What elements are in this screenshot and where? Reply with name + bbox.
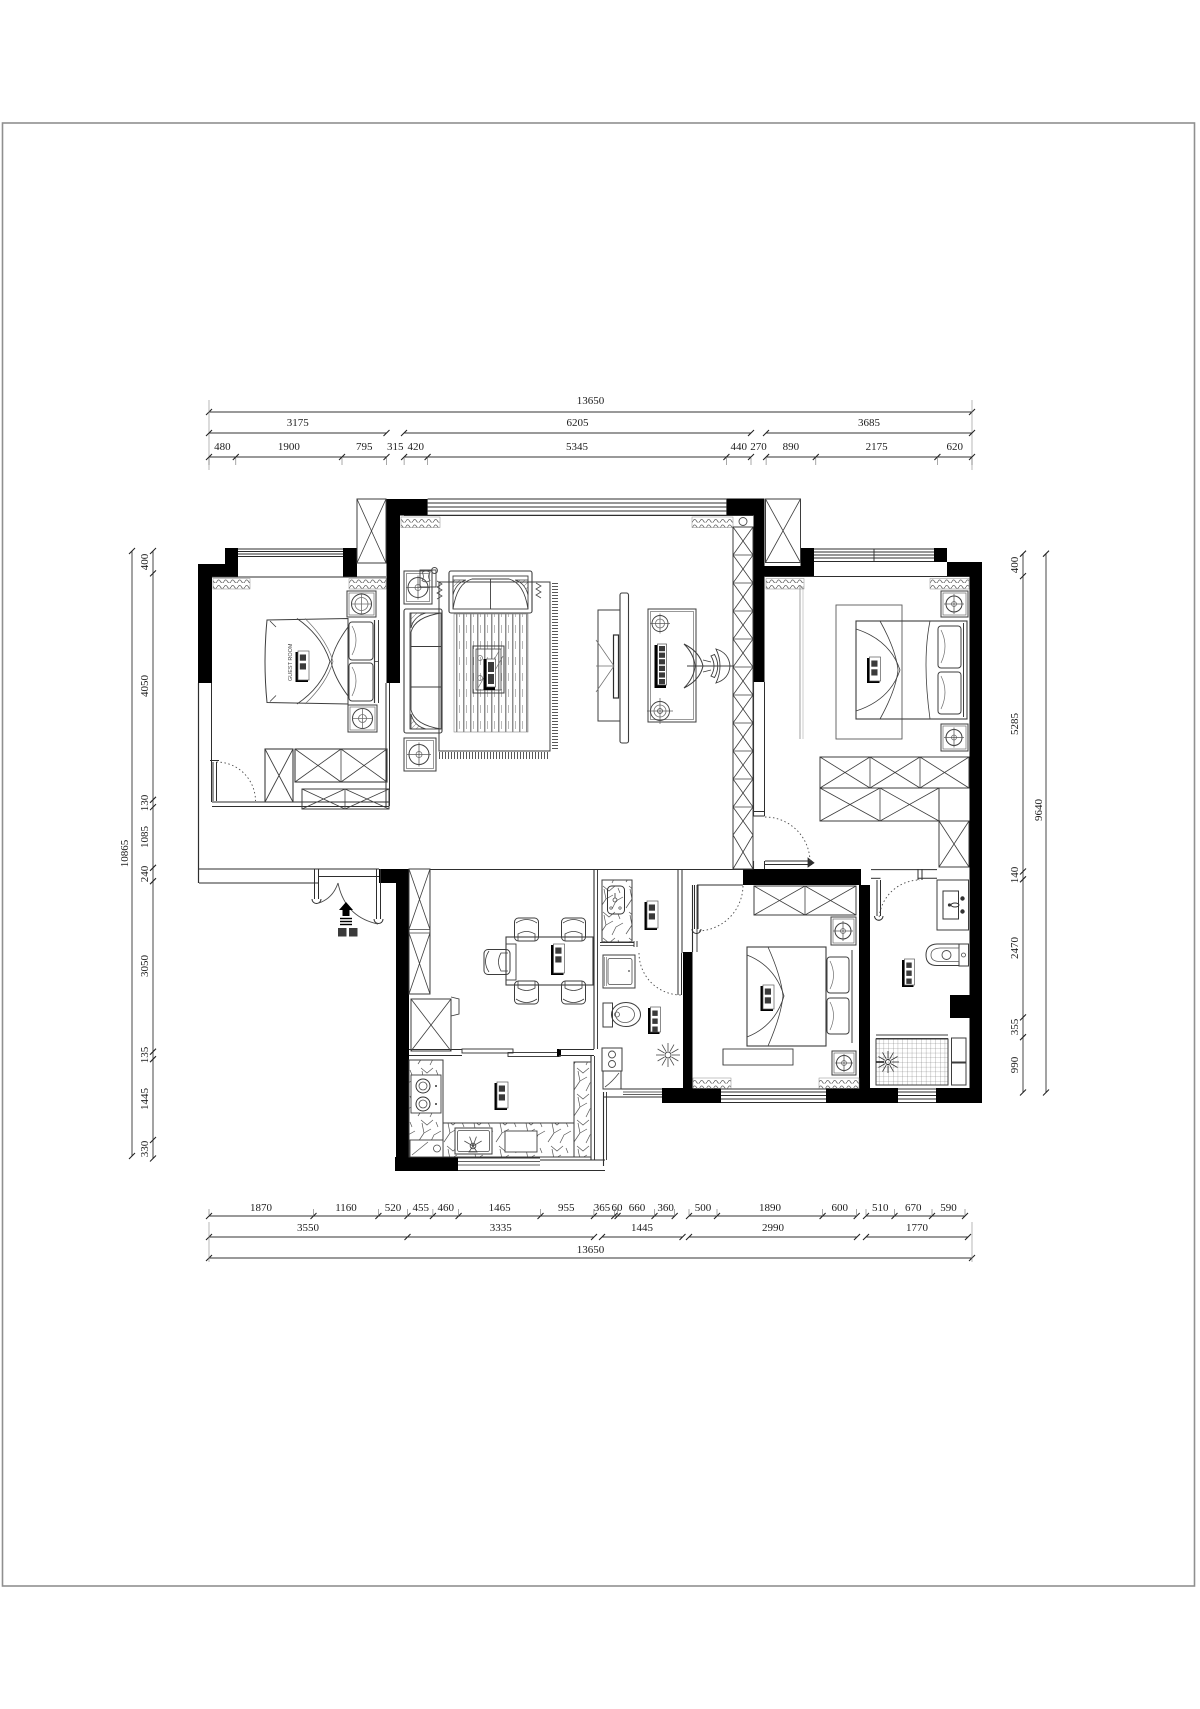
svg-text:1445: 1445 xyxy=(631,1222,654,1234)
svg-text:330: 330 xyxy=(139,1140,151,1157)
svg-text:4050: 4050 xyxy=(139,675,151,698)
svg-text:1465: 1465 xyxy=(489,1202,512,1214)
svg-text:1900: 1900 xyxy=(278,441,301,453)
svg-text:13650: 13650 xyxy=(577,395,605,407)
svg-text:270: 270 xyxy=(750,441,767,453)
svg-text:13650: 13650 xyxy=(577,1244,605,1256)
svg-text:3175: 3175 xyxy=(287,417,310,429)
svg-text:2990: 2990 xyxy=(762,1222,785,1234)
svg-text:3335: 3335 xyxy=(490,1222,513,1234)
svg-text:955: 955 xyxy=(558,1202,575,1214)
svg-text:990: 990 xyxy=(1009,1056,1021,1073)
svg-text:1890: 1890 xyxy=(759,1202,782,1214)
svg-text:60: 60 xyxy=(612,1202,624,1214)
svg-text:1085: 1085 xyxy=(139,826,151,849)
svg-text:1445: 1445 xyxy=(139,1088,151,1111)
svg-text:9640: 9640 xyxy=(1033,799,1045,822)
svg-text:240: 240 xyxy=(139,865,151,882)
svg-text:890: 890 xyxy=(783,441,800,453)
svg-text:315: 315 xyxy=(387,441,404,453)
svg-text:400: 400 xyxy=(139,553,151,570)
svg-text:GUEST ROOM: GUEST ROOM xyxy=(288,643,294,681)
svg-text:1870: 1870 xyxy=(250,1202,273,1214)
svg-text:140: 140 xyxy=(1009,866,1021,883)
svg-text:5285: 5285 xyxy=(1009,713,1021,736)
svg-text:3685: 3685 xyxy=(858,417,881,429)
svg-text:460: 460 xyxy=(438,1202,455,1214)
svg-text:5345: 5345 xyxy=(566,441,589,453)
svg-text:365: 365 xyxy=(594,1202,611,1214)
svg-text:620: 620 xyxy=(946,441,963,453)
svg-text:2175: 2175 xyxy=(866,441,889,453)
svg-text:520: 520 xyxy=(385,1202,402,1214)
svg-text:1770: 1770 xyxy=(906,1222,929,1234)
svg-text:1160: 1160 xyxy=(335,1202,357,1214)
svg-text:455: 455 xyxy=(412,1202,429,1214)
svg-text:510: 510 xyxy=(872,1202,889,1214)
svg-text:6205: 6205 xyxy=(567,417,590,429)
svg-text:3050: 3050 xyxy=(139,955,151,978)
svg-text:420: 420 xyxy=(408,441,425,453)
svg-text:360: 360 xyxy=(657,1202,674,1214)
svg-text:3550: 3550 xyxy=(297,1222,320,1234)
svg-text:500: 500 xyxy=(695,1202,712,1214)
svg-text:600: 600 xyxy=(831,1202,848,1214)
svg-text:670: 670 xyxy=(905,1202,922,1214)
svg-text:440: 440 xyxy=(730,441,747,453)
svg-text:2470: 2470 xyxy=(1009,937,1021,960)
svg-text:355: 355 xyxy=(1009,1018,1021,1035)
svg-text:10865: 10865 xyxy=(119,839,131,867)
svg-text:590: 590 xyxy=(940,1202,957,1214)
svg-text:135: 135 xyxy=(139,1046,151,1063)
svg-text:480: 480 xyxy=(214,441,231,453)
svg-text:400: 400 xyxy=(1009,556,1021,573)
svg-text:795: 795 xyxy=(356,441,373,453)
svg-text:660: 660 xyxy=(629,1202,646,1214)
svg-text:130: 130 xyxy=(139,794,151,811)
